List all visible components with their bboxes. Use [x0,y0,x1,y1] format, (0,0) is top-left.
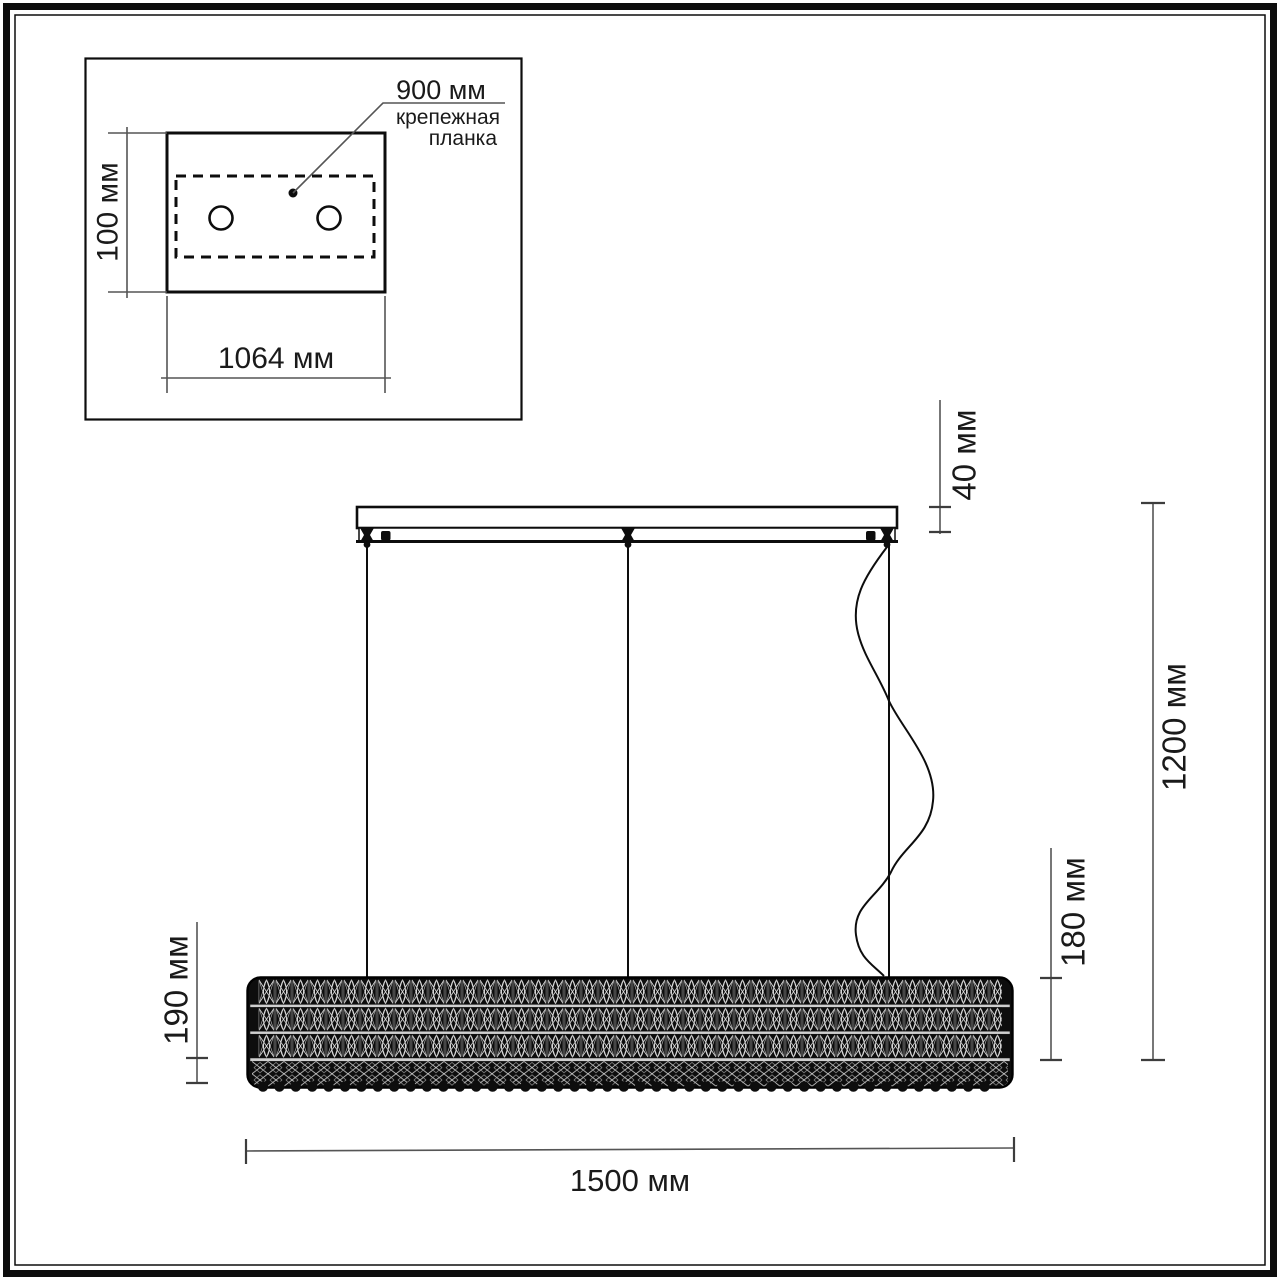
dimension-body-height-left: 190 мм [158,922,209,1083]
drawing-page: 900 мм крепежная планка 100 мм 1064 мм [0,0,1280,1280]
lamp-row-divider-3 [250,1058,1010,1061]
dimension-plate-height-label: 100 мм [92,162,125,262]
canopy-nub-left [381,531,391,541]
dimension-canopy-height: 40 мм [929,400,983,534]
canopy-bar [357,507,897,528]
dimension-body-height-left-label: 190 мм [158,935,195,1045]
technical-drawing: 900 мм крепежная планка 100 мм 1064 мм [0,0,1280,1280]
dimension-overall-height-label: 1200 мм [1156,663,1193,791]
suspension-cables [367,546,933,977]
canopy-top-view [167,133,385,292]
dimension-body-height-right-label: 180 мм [1055,857,1092,967]
mounting-plate-label-line1: крепежная [396,106,500,129]
lamp-row-divider-2 [250,1031,1010,1034]
hole-spacing-label: 900 мм [396,75,486,105]
lamp-pattern-row-1 [258,979,1002,1004]
canopy-nub-right [866,531,876,541]
inset-panel: 900 мм крепежная планка 100 мм 1064 мм [86,59,522,420]
canopy-side-view [356,507,898,548]
power-cord [856,547,934,976]
dimension-overall-height: 1200 мм [1141,503,1193,1060]
dimension-body-length-label: 1500 мм [570,1163,690,1198]
lamp-body [248,978,1013,1088]
dimension-plate-width-label: 1064 мм [218,342,334,375]
dimension-body-length: 1500 мм [246,1137,1014,1198]
dimension-plate-height: 100 мм [92,127,168,298]
lamp-bottom-band [252,1061,1008,1086]
mounting-plate-label-line2: планка [429,127,498,150]
dimension-canopy-height-label: 40 мм [946,409,983,500]
lamp-pattern-row-2 [258,1007,1002,1031]
dimension-plate-width: 1064 мм [161,296,391,393]
lamp-row-divider-1 [250,1004,1010,1007]
dimension-body-height-right: 180 мм [1040,848,1092,1060]
lamp-pattern-row-3 [258,1034,1002,1058]
